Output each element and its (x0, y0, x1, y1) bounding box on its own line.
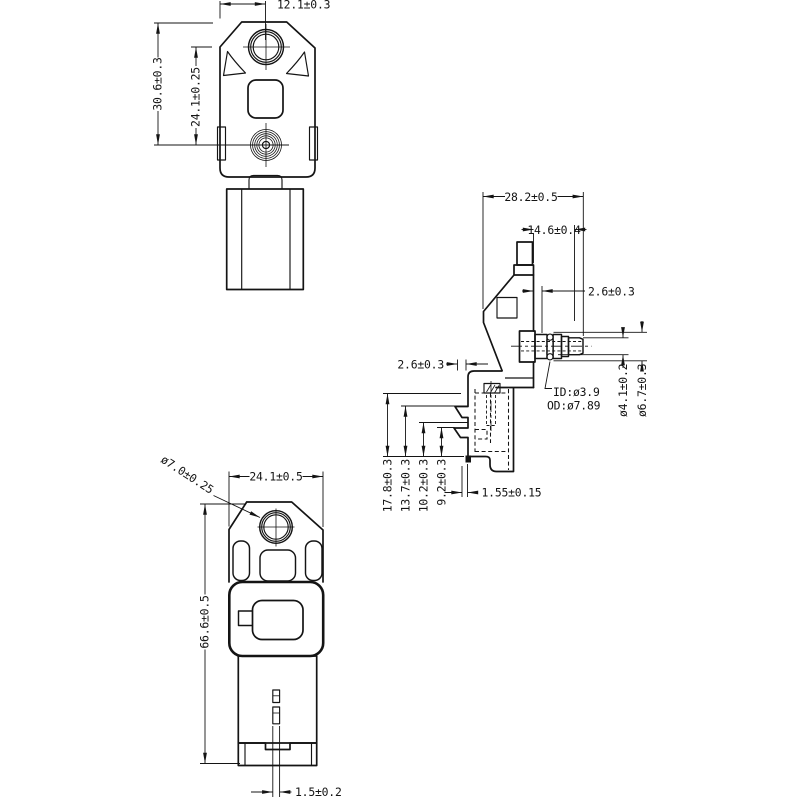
dim-label-h4: 9.2±0.3 (435, 459, 449, 506)
slot-right (306, 541, 323, 581)
dimension-port-dia: ø7.0±0.25 (158, 452, 260, 517)
latch-notch-right (310, 127, 318, 160)
side-housing-left (484, 275, 515, 371)
hose-nipple (511, 331, 592, 362)
dim-label-step-front: 2.6±0.3 (588, 284, 635, 298)
dim-label-terminal: 1.5±0.2 (295, 785, 342, 799)
dim-label-h2: 13.7±0.3 (399, 459, 413, 512)
sensor-cap (229, 582, 323, 656)
dimension-12-1: 12.1±0.3 (220, 0, 330, 40)
dimension-1-5: 1.5±0.2 (251, 726, 342, 799)
label-inner-dia: ID:ø3.9 (553, 385, 600, 399)
dimension-2-6-rear: 2.6±0.3 (397, 357, 488, 371)
dim-label-depth: 28.2±0.5 (504, 190, 557, 204)
dimension-24-1-025: 24.1±0.25 (189, 47, 213, 145)
dim-label-height-inner: 24.1±0.25 (189, 67, 203, 127)
dim-label-port-offset: 12.1±0.3 (277, 0, 330, 12)
view-front-full: ø7.0±0.25 24.1±0.5 66.6±0.5 1.5±0.2 (158, 452, 341, 799)
dim-label-port-length: 14.6±0.4 (527, 223, 581, 237)
drawing-page: 12.1±0.3 30.6±0.3 24.1±0.25 (0, 0, 800, 800)
connector-skirt (238, 743, 316, 766)
dimension-1-55: 1.55±0.15 (445, 464, 542, 500)
leader-id-od: ID:ø3.9 OD:ø7.89 (545, 362, 601, 413)
dim-label-h1: 17.8±0.3 (381, 459, 395, 512)
skirt-inner-walls (245, 743, 312, 766)
slot-left (233, 541, 250, 581)
dim-label-h3: 10.2±0.3 (417, 459, 431, 512)
center-boss (248, 80, 283, 118)
full-port-crosshair (258, 509, 295, 547)
view-front-top: 12.1±0.3 30.6±0.3 24.1±0.25 (151, 0, 331, 290)
dim-label-port-dia: ø7.0±0.25 (158, 452, 216, 496)
connector-inner-walls (242, 189, 290, 290)
full-connector (238, 656, 316, 743)
dim-label-foot-lip: 1.55±0.15 (482, 486, 542, 500)
dim-label-width: 24.1±0.5 (249, 470, 302, 484)
latch-notch-left (218, 127, 226, 160)
side-port-flange (514, 265, 534, 275)
cap-notch (239, 611, 253, 626)
label-outer-dia: OD:ø7.89 (547, 399, 601, 413)
side-window (497, 298, 517, 319)
dimension-heights: 17.8±0.3 13.7±0.3 10.2±0.3 9.2±0.3 (381, 394, 469, 513)
pocket-left (224, 52, 246, 76)
dim-label-step-rear: 2.6±0.3 (397, 357, 444, 371)
cap-inner-frame (253, 601, 304, 640)
dim-label-barb-dia: ø6.7±0.3 (635, 364, 649, 417)
technical-drawing-canvas: 12.1±0.3 30.6±0.3 24.1±0.25 (0, 0, 800, 800)
connector-terminals (273, 690, 280, 724)
view-side: 28.2±0.5 14.6±0.4 2.6±0.3 2.6±0.3 ID:ø3.… (381, 190, 650, 512)
connector-housing (227, 189, 304, 290)
dim-label-height: 66.6±0.5 (198, 595, 212, 648)
pocket-right (287, 52, 309, 76)
dimension-2-6-front: 2.6±0.3 (522, 284, 635, 333)
side-terminal (484, 384, 500, 394)
slot-center (260, 550, 296, 581)
side-port-top (517, 242, 533, 265)
dim-label-tip-dia: ø4.1±0.2 (616, 364, 630, 417)
dim-label-height-outer: 30.6±0.3 (151, 57, 165, 110)
dimension-14-6: 14.6±0.4 (522, 223, 587, 321)
port-crosshair (243, 24, 290, 70)
